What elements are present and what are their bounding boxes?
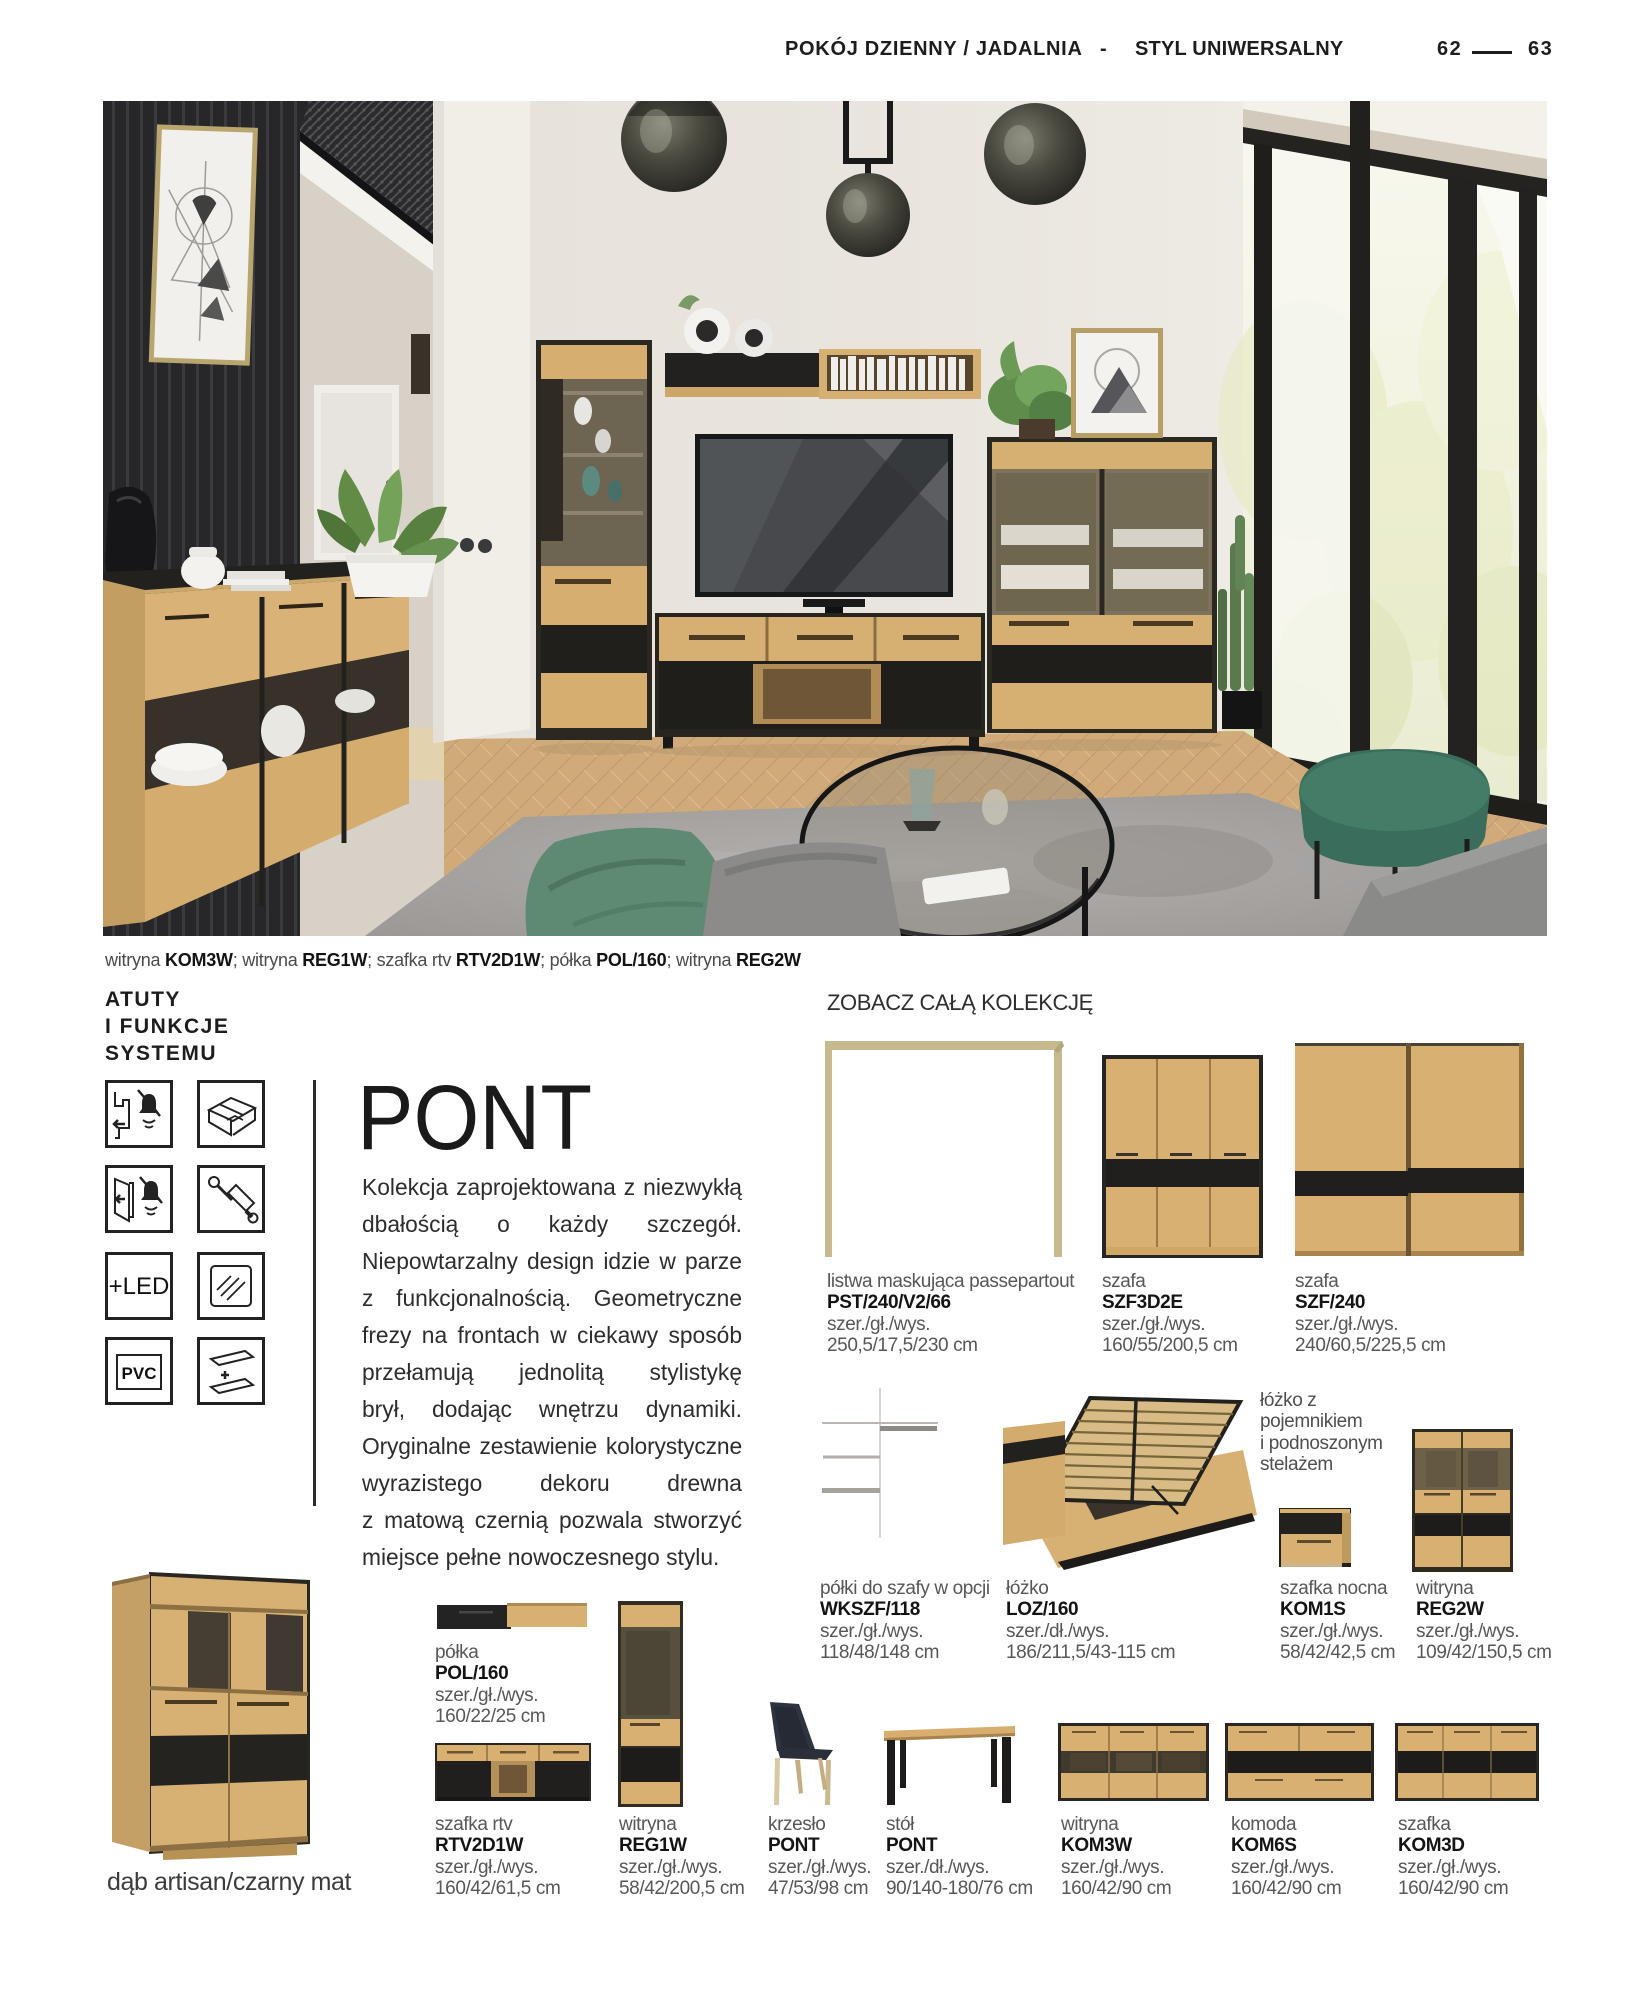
svg-text:PVC: PVC [122, 1364, 157, 1383]
svg-text:+LED: +LED [109, 1273, 170, 1300]
